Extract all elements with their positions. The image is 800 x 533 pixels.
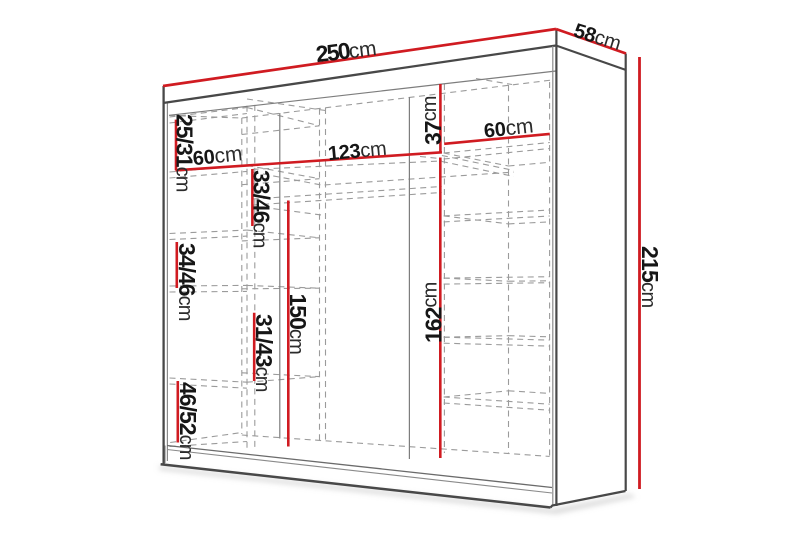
svg-text:215cm: 215cm xyxy=(637,246,663,308)
svg-text:150cm: 150cm xyxy=(285,294,311,355)
svg-text:31/43cm: 31/43cm xyxy=(251,314,277,392)
svg-text:34/46cm: 34/46cm xyxy=(174,243,200,321)
svg-text:33/46cm: 33/46cm xyxy=(249,170,275,248)
svg-text:25/31cm: 25/31cm xyxy=(172,114,198,192)
svg-text:46/52cm: 46/52cm xyxy=(175,382,201,460)
